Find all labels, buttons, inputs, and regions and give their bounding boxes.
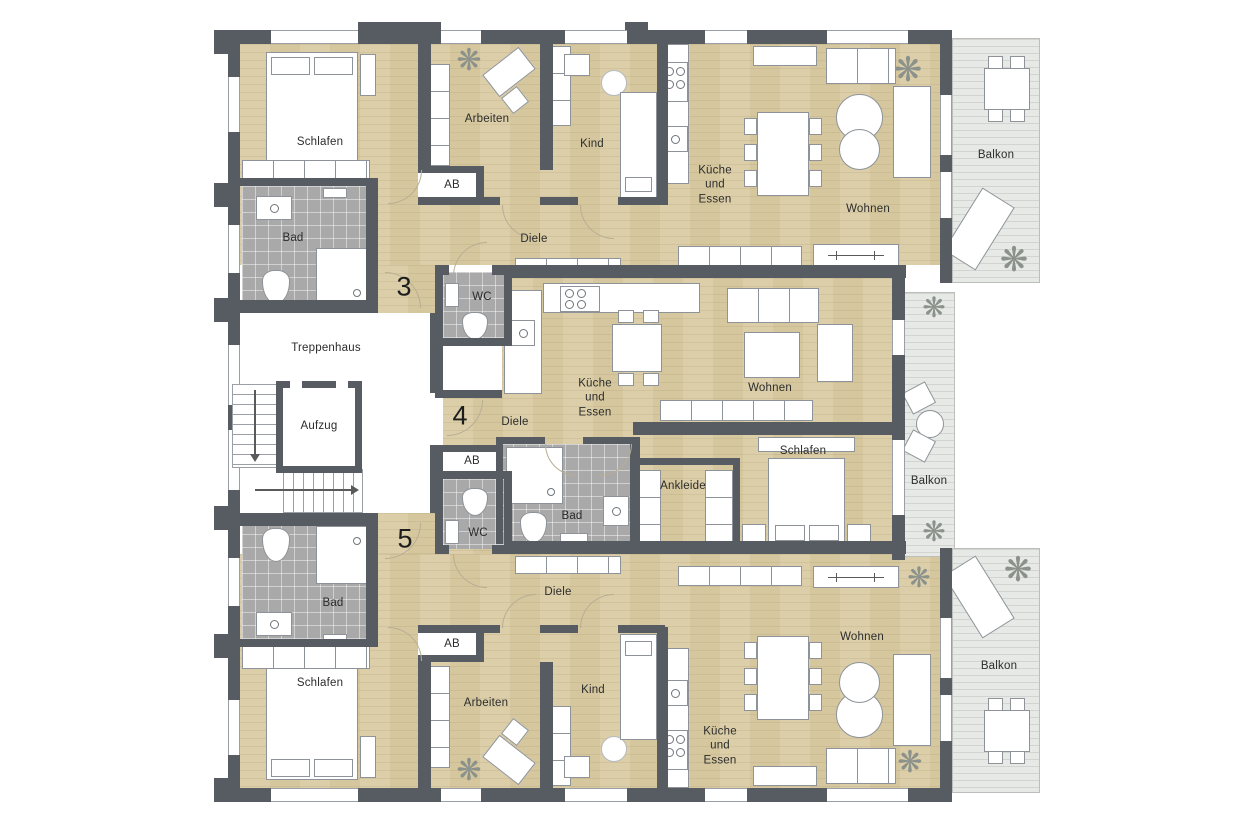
window <box>565 788 627 802</box>
window <box>271 30 358 44</box>
chair <box>744 170 757 187</box>
room-label-kueche-4: Küche und Essen <box>571 376 619 419</box>
plant-icon: ❋ <box>897 748 922 778</box>
plant-icon: ❋ <box>456 46 481 76</box>
chair <box>809 668 822 685</box>
wall <box>504 265 512 346</box>
washbasin <box>445 283 459 307</box>
window <box>228 700 240 755</box>
wall <box>435 545 449 554</box>
balcony-table <box>984 710 1030 752</box>
chair <box>1010 109 1025 122</box>
wall <box>657 44 668 205</box>
sideboard <box>678 246 802 266</box>
room-label-wohnen-3: Wohnen <box>846 203 890 215</box>
pillow <box>271 759 310 777</box>
window-door <box>940 95 952 155</box>
wall <box>435 479 443 553</box>
window <box>441 788 481 802</box>
room-label-wc-5: WC <box>468 527 488 539</box>
stairs-arrow-down <box>250 454 260 462</box>
window <box>705 30 747 44</box>
room-label-ab-3: AB <box>444 179 460 191</box>
wall <box>657 627 668 788</box>
pillow <box>271 57 310 75</box>
room-label-diele-5: Diele <box>544 586 571 598</box>
room-label-wohnen-5: Wohnen <box>840 631 884 643</box>
room-label-kind-5: Kind <box>581 684 605 696</box>
plant-icon: ❋ <box>456 756 481 786</box>
apartment-number-3: 3 <box>396 272 411 303</box>
room-label-balkon-4: Balkon <box>911 475 947 487</box>
wall <box>630 437 640 544</box>
room-label-schlafen-5: Schlafen <box>297 677 343 689</box>
wall <box>418 625 500 633</box>
wall <box>228 513 378 526</box>
room-label-arbeiten-5: Arbeiten <box>464 697 508 709</box>
sideboard <box>660 400 813 421</box>
wall <box>492 265 504 275</box>
wall <box>240 639 366 647</box>
window <box>228 225 240 273</box>
room-label-ankleide-4: Ankleide <box>660 480 706 492</box>
wardrobe <box>705 470 733 546</box>
wall <box>435 445 502 452</box>
room-label-ab-5: AB <box>444 638 460 650</box>
tv-lowboard <box>813 566 899 588</box>
washbasin <box>256 612 292 636</box>
bed <box>620 634 657 740</box>
wall <box>435 338 512 346</box>
hall-wardrobe <box>515 556 621 574</box>
wall <box>940 30 952 283</box>
pillow <box>314 759 353 777</box>
wall-pilaster <box>358 22 441 30</box>
window-door <box>940 172 952 218</box>
dining-table <box>757 636 809 720</box>
tv-lowboard <box>813 244 899 266</box>
chair <box>643 373 659 386</box>
desk <box>564 756 590 778</box>
chair <box>809 694 822 711</box>
coffee-table <box>839 129 880 170</box>
wall <box>228 300 378 313</box>
chair <box>1010 698 1025 711</box>
wall-pilaster <box>625 22 648 30</box>
chair <box>744 118 757 135</box>
room-label-bad-3: Bad <box>282 232 303 244</box>
chair <box>744 642 757 659</box>
wall <box>435 265 443 346</box>
wall <box>476 166 484 197</box>
window <box>565 30 627 44</box>
room-label-kueche-3: Küche und Essen <box>691 163 739 206</box>
wall <box>418 44 431 166</box>
apartment-number-5: 5 <box>397 524 412 555</box>
wall <box>418 655 431 788</box>
sofa <box>727 288 819 323</box>
stairs-arrow-right <box>351 485 359 495</box>
shower <box>316 248 368 306</box>
room-label-aufzug: Aufzug <box>300 420 337 432</box>
wall <box>633 458 739 465</box>
nightstand <box>360 736 376 778</box>
wall-pilaster <box>214 506 228 530</box>
sideboard <box>753 766 817 786</box>
chair <box>744 694 757 711</box>
bed <box>768 458 845 546</box>
room-label-wc-3: WC <box>472 291 492 303</box>
window <box>228 558 240 606</box>
room-label-schlafen-4: Schlafen <box>780 445 826 457</box>
chair <box>618 373 634 386</box>
room-label-diele-4: Diele <box>501 416 528 428</box>
wall-pilaster <box>214 30 228 54</box>
wall-pilaster <box>214 183 228 207</box>
chair <box>744 668 757 685</box>
room-label-schlafen-3: Schlafen <box>297 136 343 148</box>
room-label-balkon-3: Balkon <box>978 149 1014 161</box>
wall <box>496 444 503 544</box>
chair <box>643 310 659 323</box>
wall <box>540 625 578 633</box>
room-label-treppenhaus: Treppenhaus <box>291 342 361 354</box>
wall <box>476 633 484 662</box>
chair <box>809 642 822 659</box>
window <box>892 320 905 355</box>
wall <box>733 458 740 546</box>
window-door <box>940 695 952 741</box>
sideboard <box>753 46 817 66</box>
room-label-kueche-5: Küche und Essen <box>696 724 744 767</box>
wall <box>418 655 484 662</box>
chair <box>618 310 634 323</box>
chair <box>1010 751 1025 764</box>
chair <box>809 170 822 187</box>
sofa <box>893 86 931 178</box>
wall <box>418 197 500 205</box>
sofa <box>826 48 896 84</box>
wall <box>892 265 905 560</box>
window-door <box>940 618 952 678</box>
balcony-table <box>984 68 1030 110</box>
window <box>705 788 747 802</box>
nightstand <box>360 54 376 96</box>
chair <box>744 144 757 161</box>
wall <box>496 437 545 444</box>
chair <box>988 698 1003 711</box>
floor-plan: ❋ ❋ ❋ ❋ ❋ ❋ ❋ ❋ ❋ Schlafen Bad Arbeiten … <box>0 0 1250 833</box>
window <box>441 30 481 44</box>
wall <box>504 479 512 553</box>
room-label-bad-5: Bad <box>322 597 343 609</box>
room-label-wohnen-4: Wohnen <box>748 382 792 394</box>
wall-pilaster <box>214 778 228 802</box>
window <box>827 788 908 802</box>
pillow <box>625 641 652 656</box>
window <box>271 788 358 802</box>
stairs-direction-line <box>255 489 351 491</box>
room-label-kind-3: Kind <box>580 138 604 150</box>
window-door <box>892 440 905 515</box>
wall <box>435 390 502 398</box>
wall <box>240 178 366 186</box>
wall <box>583 437 637 444</box>
wall <box>540 197 578 205</box>
pillow <box>775 525 805 541</box>
pillow <box>625 177 652 192</box>
wall <box>540 44 553 170</box>
plant-icon: ❋ <box>922 294 945 322</box>
wall <box>633 422 892 435</box>
chair <box>809 144 822 161</box>
wardrobe <box>242 645 370 669</box>
plant-icon: ❋ <box>907 564 930 592</box>
sofa <box>893 654 931 746</box>
chair <box>988 109 1003 122</box>
kitchen-sink <box>511 320 535 346</box>
floor-niche-4 <box>443 346 502 390</box>
dining-table <box>757 112 809 196</box>
room-label-diele-3: Diele <box>520 233 547 245</box>
coffee-table <box>839 662 880 703</box>
stove <box>560 286 600 312</box>
sofa <box>826 748 896 784</box>
coffee-table <box>744 332 800 378</box>
washbasin <box>256 196 292 220</box>
elevator-door-gap <box>290 378 302 388</box>
room-label-ab-4: AB <box>464 455 480 467</box>
room-label-arbeiten-3: Arbeiten <box>465 113 509 125</box>
wall <box>504 541 906 554</box>
elevator-door-gap <box>336 378 348 388</box>
washbasin <box>603 496 629 526</box>
room-label-balkon-5: Balkon <box>981 660 1017 672</box>
dining-table <box>612 324 662 372</box>
chair <box>809 118 822 135</box>
wall-pilaster <box>214 634 228 658</box>
bed <box>620 92 657 198</box>
apartment-number-4: 4 <box>452 401 467 432</box>
washbasin <box>445 520 459 544</box>
wall <box>504 265 906 278</box>
stairs-direction-line <box>254 390 256 454</box>
shower <box>316 526 368 584</box>
room-label-bad-4: Bad <box>561 510 582 522</box>
window <box>827 30 908 44</box>
window <box>228 77 240 132</box>
plant-icon: ❋ <box>894 53 923 87</box>
pillow <box>809 525 839 541</box>
desk <box>564 54 590 76</box>
chair <box>988 56 1003 69</box>
plant-icon: ❋ <box>922 518 945 546</box>
plant-icon: ❋ <box>1004 553 1033 587</box>
wall <box>366 178 378 313</box>
armchair <box>817 324 853 382</box>
wall <box>492 545 504 554</box>
wall <box>418 166 484 173</box>
sideboard <box>678 566 802 586</box>
chair <box>1010 56 1025 69</box>
pillow <box>314 57 353 75</box>
plant-icon: ❋ <box>1000 243 1029 277</box>
wall <box>366 513 378 647</box>
towel-radiator <box>323 188 347 198</box>
wall-pilaster <box>214 298 228 322</box>
chair <box>988 751 1003 764</box>
wall <box>540 662 553 788</box>
